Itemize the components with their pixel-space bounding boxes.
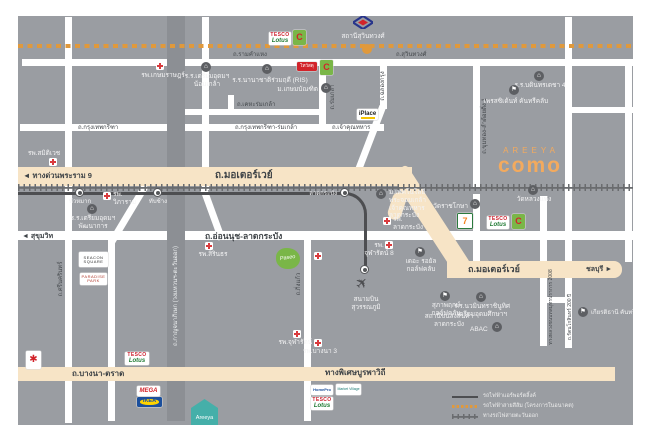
- school-kasembundit-label: ม.เกษมบัณฑิต: [258, 86, 318, 94]
- road-label-suwinthawong: ถ.สุวินทวงศ์: [396, 52, 427, 58]
- road-label-kingkaew: ถ.กิ่งแก้ว: [295, 259, 303, 309]
- school-icon: ⌂: [262, 64, 272, 74]
- road-vertical-seacon: [108, 237, 115, 421]
- road-label-chonburi: ชลบุรี ►: [586, 266, 612, 273]
- school-icon: ⌂: [201, 62, 211, 72]
- hospital-vibharam-label: รพ. วิภาราม: [113, 191, 153, 207]
- mega-bangna-logo: MEGA: [137, 386, 160, 396]
- school-triamudom-pattanakarn-label: ร.ร.เตรียมอุดมฯ พัฒนาการ: [58, 215, 128, 231]
- market-village-logo: Market Village: [336, 384, 361, 395]
- bigc-logo: C: [293, 30, 306, 45]
- school-icon: ⌂: [321, 83, 331, 93]
- bigc-star-logo: ✱: [26, 351, 41, 369]
- airplane-icon: ✈: [353, 274, 373, 294]
- hospital-sirindhorn-label: รพ.สิรินธร: [183, 251, 243, 259]
- map-page: ถ.รามคำแหง ถ.สุวินทวงศ์ ถ.กรุงเทพกรีฑา ถ…: [0, 0, 650, 442]
- road-label-burapha: ทางพิเศษบูรพาวิถี: [325, 369, 386, 377]
- road-label-srinakarin: ถ.ศรีนครินทร์: [57, 244, 65, 314]
- legend-airport-link-swatch: [452, 396, 478, 398]
- legend-airport-link-label: รถไฟฟ้าแอร์พอร์ตลิ้งค์: [483, 394, 536, 400]
- east-railway-line: [18, 184, 633, 191]
- president-country-club-label: เพรสซิเด้นท์ คันทรีคลับ: [476, 98, 556, 106]
- royal-golf-label: เดอะ รอยัล กอล์ฟคลับ: [391, 258, 451, 274]
- legend-east-rail-swatch: [452, 414, 478, 419]
- school-ris-label: ร.ร.นานาชาติร่วมฤดี (RIS): [225, 77, 315, 85]
- airport-link-line: [18, 192, 343, 195]
- road-label-kanchanaphisek: ถ.กาญจนาภิเษก (วงแหวนฯ-ตะวันออก): [172, 216, 180, 376]
- temple-ratchakosa-label: วัดราชโกษา: [428, 203, 468, 211]
- road-kheha-stub: [228, 95, 234, 111]
- hospital-samitivej-label: รพ.สมิติเวช: [18, 150, 74, 158]
- ikea-logo: IKEA: [137, 397, 162, 407]
- road-right-horizontal: [567, 107, 633, 113]
- road-onnut-latkrabang: [18, 231, 633, 240]
- road-label-rama9: ◄ ทางด่วนพระราม 9: [23, 172, 92, 180]
- temple-luangphaeng-label: วัดหลวงแพ่ง: [504, 196, 564, 204]
- road-label-onnut: ถ.อ่อนนุช-ลาดกระบัง: [205, 232, 282, 241]
- road-label-chaokhun-thahan: ถ.เจ้าคุณทหาร: [332, 125, 370, 131]
- golf-icon: ⚑: [578, 307, 588, 317]
- bigc-logo: C: [512, 214, 525, 229]
- school-icon: ⌂: [87, 204, 97, 214]
- tesco-lotus-logo: TESCOLotus: [269, 32, 291, 45]
- hospital-cross-icon: [205, 242, 213, 250]
- school-icon: ⌂: [376, 189, 386, 199]
- legend-orange-line-swatch: [452, 405, 478, 408]
- school-icon: ⌂: [476, 292, 486, 302]
- hospital-cross-icon: [103, 192, 111, 200]
- road-vertical-left: [202, 17, 209, 190]
- iplace-logo: iPlace: [357, 109, 378, 120]
- hospital-chularat8-label: รพ. จุฬารัตน์ 8: [354, 242, 404, 258]
- suvarnabhumi-airport-label: สนามบิน สุวรรณภูมิ: [336, 296, 396, 312]
- seacon-square-logo: SEACON SQUARE: [79, 252, 108, 267]
- areeya-house-logo: Areeya: [191, 399, 218, 425]
- hospital-cross-icon: [293, 330, 301, 338]
- seven-eleven-logo: 7: [457, 213, 473, 229]
- bigc-logo: C: [320, 60, 333, 75]
- legend-orange-line-label: รถไฟฟ้าสายสีส้ม (โครงการในอนาคต): [483, 404, 574, 410]
- road-label-sukhumvit: ◄ สุขุมวิท: [22, 233, 53, 240]
- station-suwinthawong-label: สถานีสุวินทวงศ์: [328, 33, 398, 41]
- temple-icon: ⌂: [528, 185, 538, 195]
- kiarti-thanee-label: เกียรติธานี คันทรีคลับ: [591, 310, 633, 317]
- station-thapchang: [153, 188, 162, 197]
- road-label-rural2008: ทางหลวงชนบทสมุทรปราการ 2008: [547, 247, 555, 367]
- hospital-cross-icon: [314, 252, 322, 260]
- road-label-romklao: ถ.ร่มเกล้า: [329, 72, 337, 122]
- brand-como-text: como: [480, 154, 580, 178]
- station-huamak: [75, 188, 84, 197]
- golf-icon: ⚑: [440, 291, 450, 301]
- road-khumthong-upper: [473, 62, 480, 187]
- road-label-motorway-east: ถ.มอเตอร์เวย์: [468, 265, 520, 274]
- orange-line-future: [18, 44, 633, 48]
- road-label-kreetha-romklao: ถ.กรุงเทพกรีฑา-ร่มเกล้า: [235, 125, 297, 131]
- temple-icon: ⌂: [470, 199, 480, 209]
- hospital-cross-icon: [314, 339, 322, 347]
- hospital-cross-icon: [49, 158, 57, 166]
- hospital-bangna3-label: รพ.บางนา 3: [295, 348, 345, 356]
- station-latkrabang: [340, 188, 349, 197]
- tesco-lotus-logo: TESCOLotus: [125, 352, 149, 365]
- road-label-rattanakosin200: ถ.รัตนโกสินทร์ 200 ปี: [566, 277, 574, 357]
- road-label-krungthep-kreetha: ถ.กรุงเทพกรีฑา: [78, 125, 118, 131]
- station-suvarnabhumi: [360, 265, 369, 274]
- homepro-logo: HomePro: [311, 385, 333, 395]
- station-huamak-label: หัวหมาก: [55, 199, 105, 206]
- legend-east-rail-label: ทางรถไฟสายตะวันออก: [483, 414, 538, 420]
- areeya-como-location-map: ถ.รามคำแหง ถ.สุวินทวงศ์ ถ.กรุงเทพกรีฑา ถ…: [18, 16, 633, 425]
- icd-latkrabang-label: สถานีขนส่งสินค้า ลาดกระบัง: [419, 313, 479, 329]
- road-label-kheha-romklao: ถ.เคหะร่มเกล้า: [237, 102, 275, 108]
- thaiwatsadu-logo: ไทวัสดุ: [297, 62, 317, 71]
- orange-line-station-dot: [362, 44, 372, 54]
- school-icon: ⌂: [534, 71, 544, 81]
- tesco-lotus-logo: TESCOLotus: [311, 397, 333, 410]
- srt-station-icon: [353, 16, 373, 29]
- station-latkrabang-label: ลาดกระบัง: [297, 191, 337, 198]
- golf-icon: ⚑: [415, 247, 425, 257]
- road-label-chalongkrung: ถ.ฉลองกรุง: [379, 59, 387, 113]
- road-label-motorway: ถ.มอเตอร์เวย์: [215, 171, 273, 181]
- school-icon: ⌂: [492, 322, 502, 332]
- hospital-cross-icon: [156, 62, 164, 70]
- road-label-bangna-trad: ถ.บางนา-ตราด: [72, 370, 124, 378]
- road-kingkaew: [304, 233, 311, 421]
- tesco-lotus-logo: TESCOLotus: [487, 216, 509, 229]
- golf-icon: ⚑: [509, 85, 519, 95]
- road-label-ramkhamhaeng: ถ.รามคำแหง: [233, 52, 267, 58]
- iplace-accent: [361, 117, 375, 119]
- the-paseo-logo: Paseo: [276, 248, 300, 269]
- paradise-park-logo: PARADISE PARK: [80, 273, 107, 285]
